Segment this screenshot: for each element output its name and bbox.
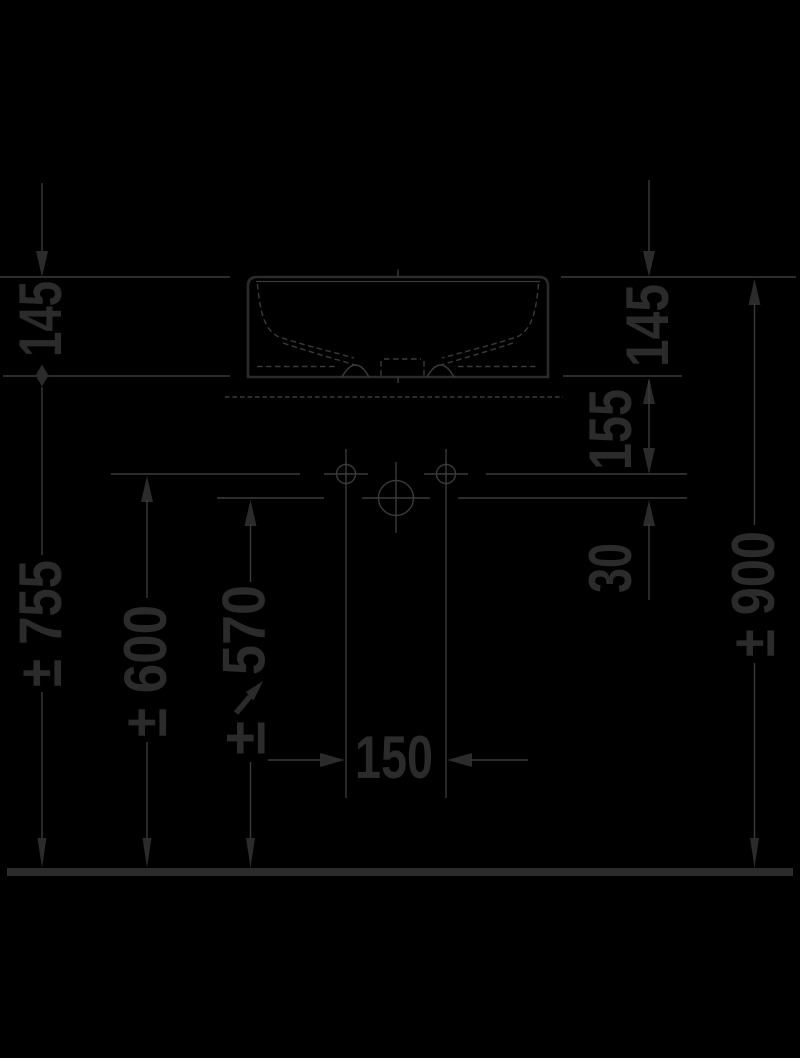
dimension-145-left-and-755: 145 ± 755 [7, 183, 74, 868]
arrowhead-down-icon [750, 838, 759, 868]
arrowhead-up-icon [643, 500, 655, 526]
drain-hump-right [427, 365, 454, 377]
floor-line [7, 868, 793, 876]
dim-label-145-right: 145 [614, 284, 681, 367]
arrowhead-down-icon [643, 448, 655, 474]
dim-label-150: 150 [355, 724, 433, 791]
dim-label-145-left: 145 [7, 281, 74, 357]
arrowhead-up-icon [245, 500, 257, 526]
dimension-155: 155 [577, 378, 655, 474]
dimension-600: ± 600 [112, 476, 179, 868]
leader-arrow-shaft [236, 697, 250, 714]
dim-label-755: ± 755 [7, 560, 74, 687]
arrowhead-right-icon [320, 753, 345, 767]
dim-label-30: 30 [577, 543, 644, 593]
arrowhead-down-icon [36, 251, 48, 277]
washbasin-dimension-diagram: 145 ± 755 ± 600 570 ± 145 155 [0, 0, 800, 1058]
technical-drawing-canvas: 145 ± 755 ± 600 570 ± 145 155 [0, 0, 800, 1058]
arrowhead-up-icon [141, 476, 153, 502]
dim-label-900: ± 900 [720, 531, 787, 657]
dimension-570: 570 ± [211, 500, 278, 868]
arrowhead-down-icon [38, 838, 47, 868]
dim-label-570: 570 [211, 585, 278, 675]
drain-hump-left [342, 365, 369, 377]
dimension-145-right: 145 [614, 180, 681, 367]
arrowhead-down-icon [643, 251, 655, 277]
dim-label-155: 155 [577, 389, 644, 470]
arrowhead-down-icon [143, 838, 152, 868]
arrowhead-left-icon [447, 753, 472, 767]
dim-label-570-plusminus: ± [211, 721, 278, 755]
diamond-marker-icon [36, 365, 49, 387]
dimension-30: 30 [577, 500, 655, 600]
arrowhead-down-icon [246, 838, 255, 868]
dim-label-600: ± 600 [112, 605, 179, 737]
basin-bowl-hidden-contours [257, 284, 539, 377]
arrowhead-up-icon [749, 279, 761, 305]
dimension-900: ± 900 [720, 279, 787, 868]
dimension-150: 150 [268, 724, 528, 791]
